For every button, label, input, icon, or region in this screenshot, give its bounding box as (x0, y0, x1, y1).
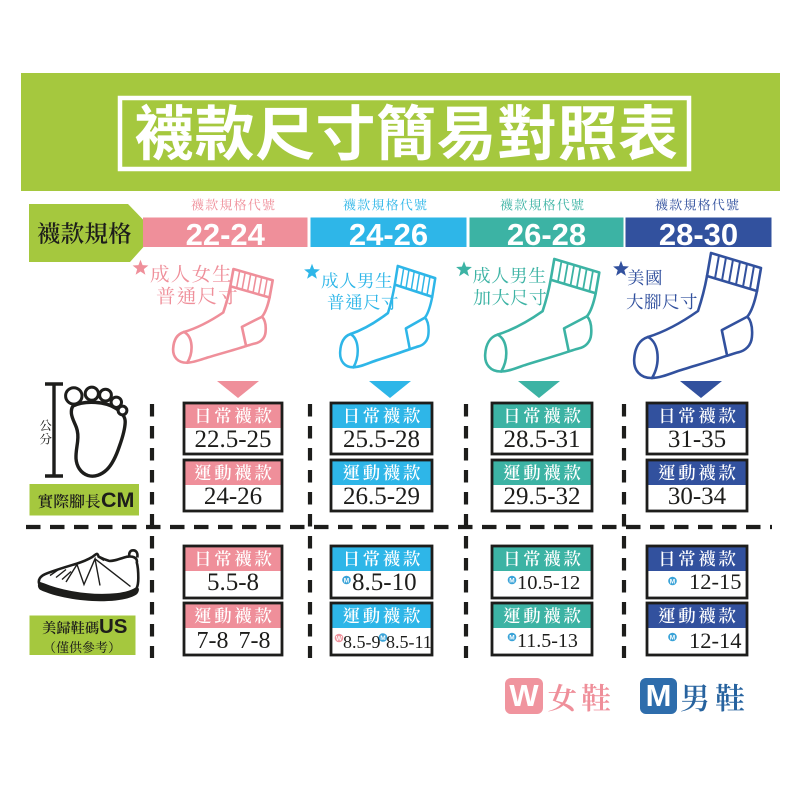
svg-text:M: M (509, 634, 514, 641)
svg-text:5.5-8: 5.5-8 (207, 569, 259, 596)
svg-text:M: M (509, 577, 514, 584)
svg-text:31-35: 31-35 (668, 426, 726, 453)
svg-text:M: M (670, 634, 675, 641)
svg-text:12-14: 12-14 (689, 628, 742, 653)
svg-text:M: M (344, 577, 349, 584)
svg-text:28.5-31: 28.5-31 (503, 426, 580, 453)
svg-text:11.5-13: 11.5-13 (517, 630, 578, 652)
svg-text:26.5-29: 26.5-29 (343, 483, 420, 510)
svg-text:24-26: 24-26 (204, 483, 262, 510)
svg-text:W: W (336, 635, 343, 642)
svg-text:US: US (99, 615, 127, 638)
svg-text:8.5-11: 8.5-11 (386, 632, 432, 652)
svg-text:30-34: 30-34 (668, 483, 727, 510)
svg-text:25.5-28: 25.5-28 (343, 426, 420, 453)
svg-text:26-28: 26-28 (507, 217, 586, 252)
svg-text:M: M (380, 635, 385, 642)
svg-text:8.5-9: 8.5-9 (343, 632, 381, 652)
svg-text:7-8: 7-8 (239, 628, 271, 654)
svg-text:7-8: 7-8 (197, 628, 229, 654)
svg-text:8.5-10: 8.5-10 (352, 569, 417, 596)
svg-text:22-24: 22-24 (186, 217, 266, 252)
svg-text:W: W (509, 678, 539, 713)
svg-text:M: M (646, 678, 672, 713)
svg-text:CM: CM (101, 488, 134, 512)
svg-text:M: M (670, 578, 675, 585)
svg-text:10.5-12: 10.5-12 (517, 572, 580, 594)
svg-text:12-15: 12-15 (689, 569, 742, 594)
svg-text:28-30: 28-30 (659, 217, 738, 252)
svg-text:24-26: 24-26 (349, 217, 428, 252)
svg-text:22.5-25: 22.5-25 (194, 426, 271, 453)
svg-text:29.5-32: 29.5-32 (503, 483, 580, 510)
